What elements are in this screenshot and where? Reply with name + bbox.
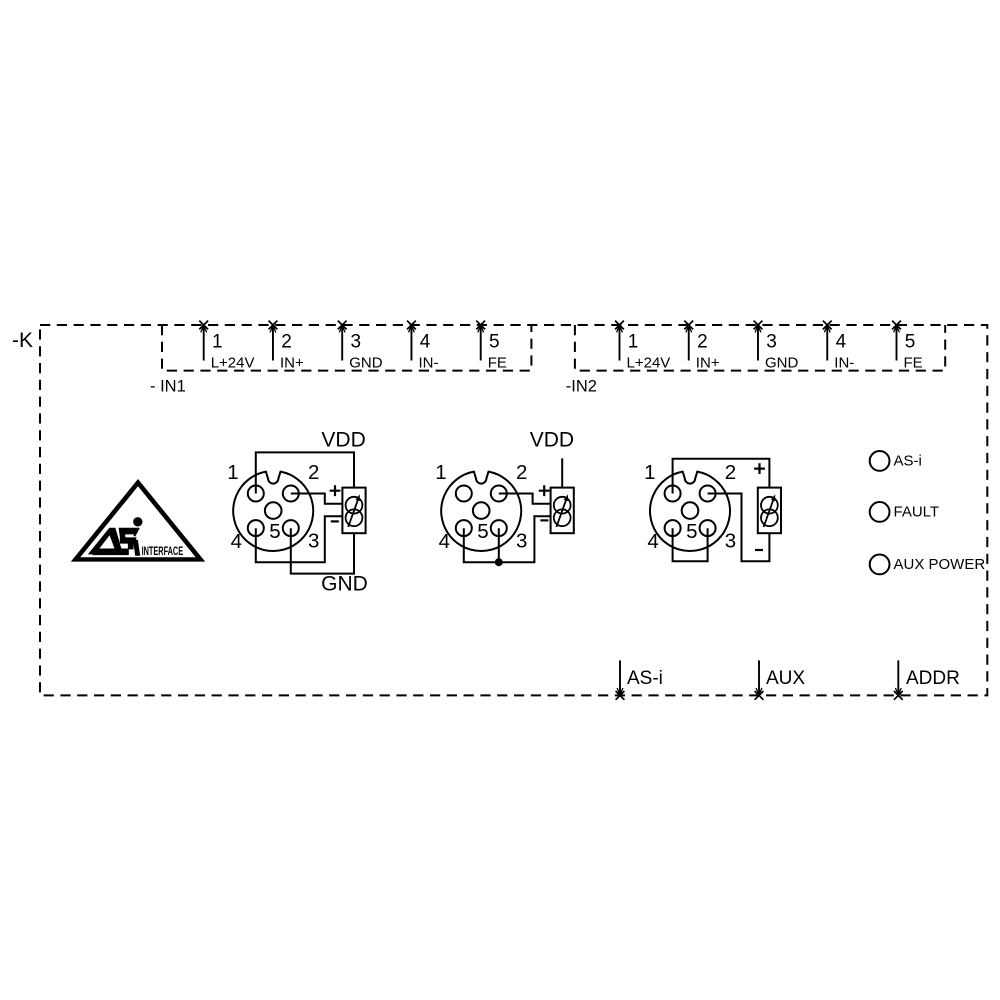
svg-text:-IN2: -IN2: [566, 378, 597, 396]
svg-text:IN-: IN-: [834, 354, 854, 371]
svg-text:IN-: IN-: [419, 354, 439, 371]
svg-text:VDD: VDD: [321, 429, 365, 452]
svg-text:VDD: VDD: [530, 429, 574, 452]
svg-text:5: 5: [489, 331, 500, 352]
svg-text:AUX POWER: AUX POWER: [894, 556, 986, 573]
svg-text:-K: -K: [12, 329, 33, 352]
svg-text:AS-i: AS-i: [894, 452, 922, 469]
svg-text:3: 3: [351, 331, 362, 352]
svg-text:IN+: IN+: [696, 354, 720, 371]
svg-text:5: 5: [905, 331, 916, 352]
svg-text:FE: FE: [488, 354, 507, 371]
svg-text:IN+: IN+: [280, 354, 304, 371]
svg-text:3: 3: [766, 331, 777, 352]
svg-text:L+24V: L+24V: [211, 354, 255, 371]
svg-text:AUX: AUX: [766, 668, 805, 689]
svg-text:GND: GND: [321, 573, 368, 596]
svg-text:1: 1: [212, 331, 223, 352]
svg-text:AS-i: AS-i: [627, 668, 663, 689]
svg-text:2: 2: [697, 331, 708, 352]
svg-text:GND: GND: [349, 354, 383, 371]
svg-text:4: 4: [836, 331, 847, 352]
svg-text:2: 2: [281, 331, 292, 352]
svg-text:FE: FE: [904, 354, 923, 371]
svg-text:GND: GND: [765, 354, 799, 371]
svg-text:INTERFACE: INTERFACE: [142, 545, 184, 558]
svg-text:- IN1: - IN1: [150, 378, 186, 396]
svg-text:ADDR: ADDR: [906, 668, 960, 689]
svg-text:FAULT: FAULT: [894, 503, 940, 520]
svg-text:4: 4: [420, 331, 431, 352]
svg-text:L+24V: L+24V: [627, 354, 671, 371]
svg-text:1: 1: [628, 331, 639, 352]
